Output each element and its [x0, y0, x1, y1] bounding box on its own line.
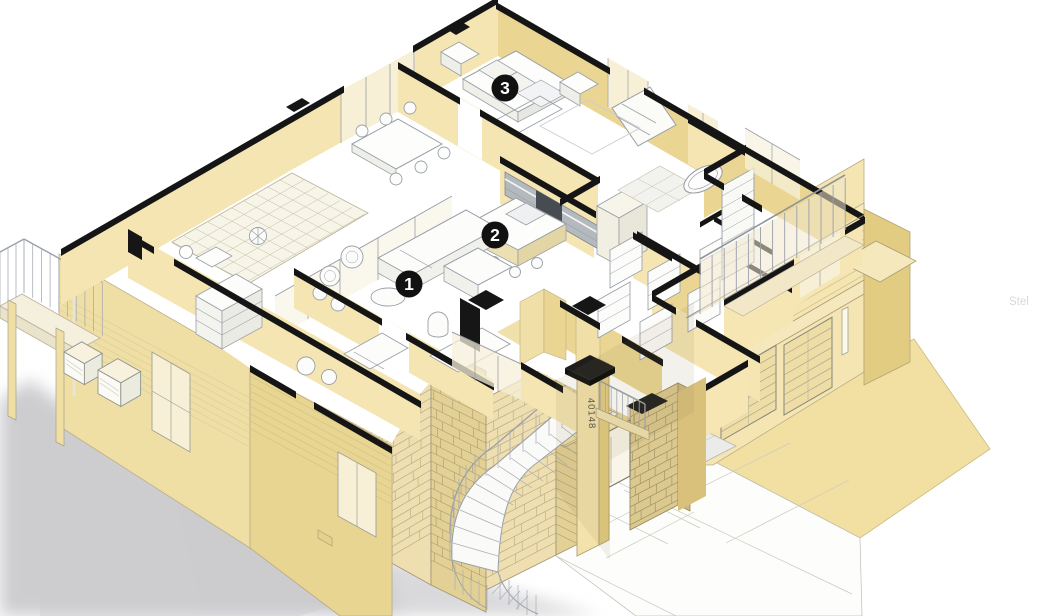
svg-text:2: 2 — [490, 225, 500, 245]
svg-text:Stel: Stel — [1009, 296, 1029, 308]
svg-text:1: 1 — [404, 274, 414, 294]
svg-text:3: 3 — [500, 78, 510, 98]
